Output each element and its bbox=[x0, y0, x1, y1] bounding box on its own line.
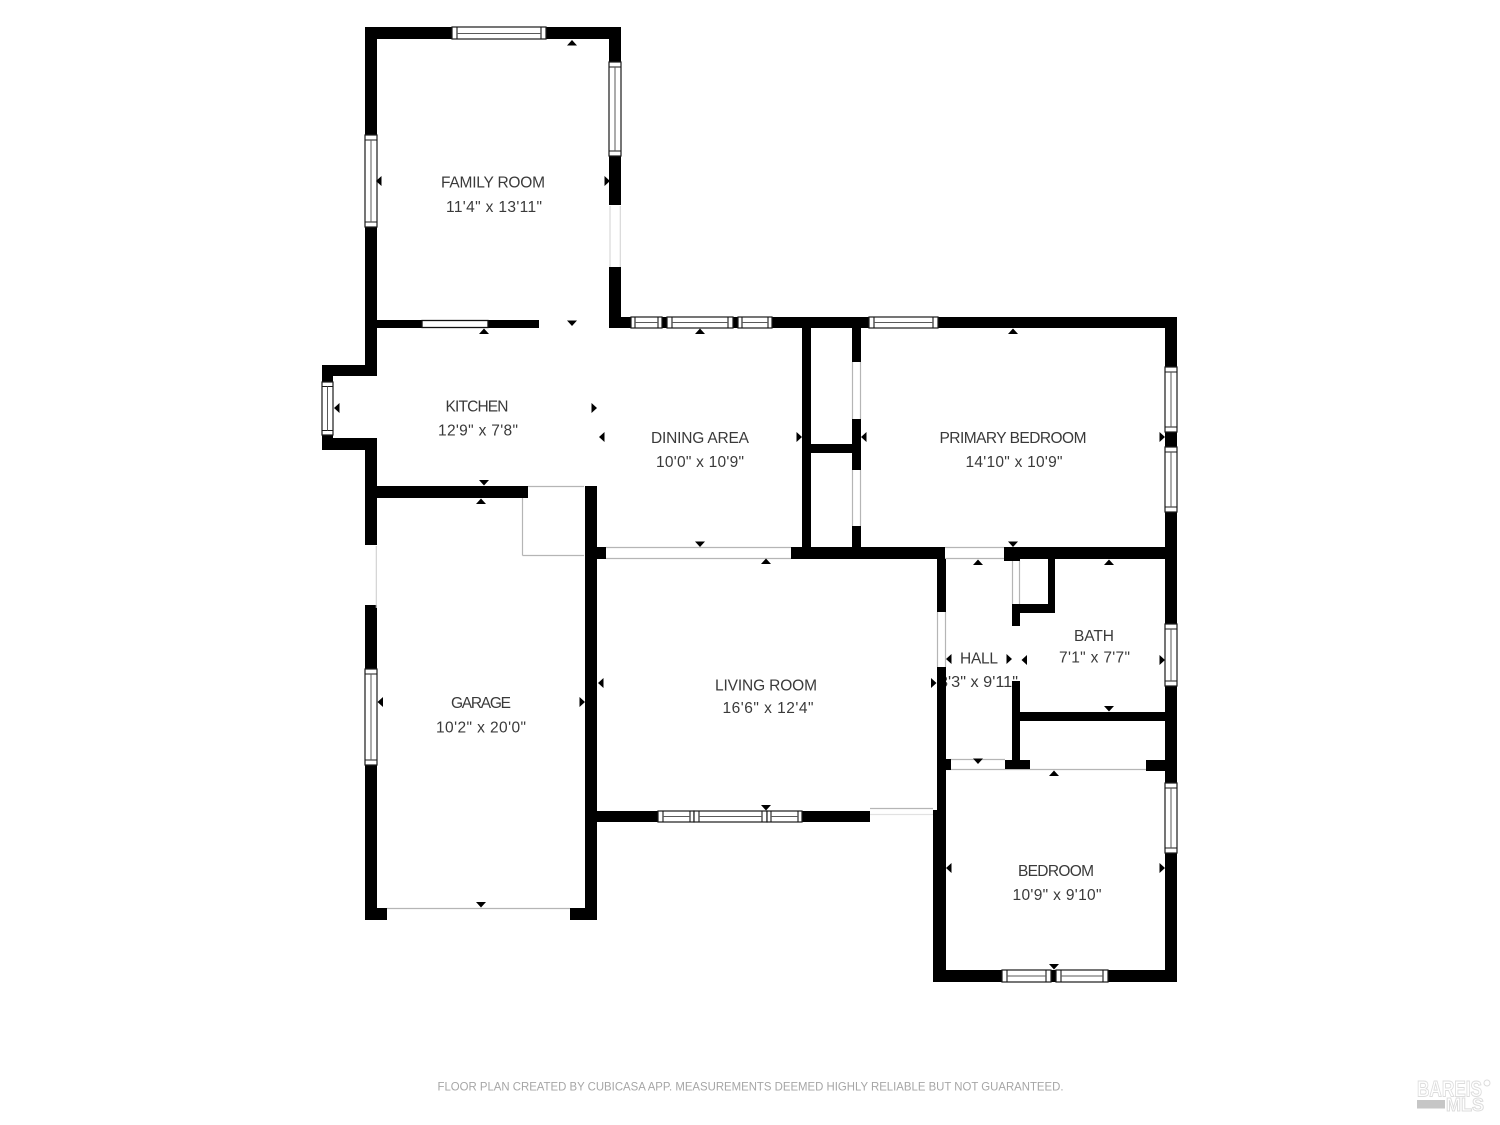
svg-text:GARAGE: GARAGE bbox=[451, 695, 511, 712]
svg-text:3'3" x 9'11": 3'3" x 9'11" bbox=[939, 674, 1018, 691]
svg-text:7'1" x 7'7": 7'1" x 7'7" bbox=[1059, 650, 1130, 667]
svg-text:FAMILY ROOM: FAMILY ROOM bbox=[441, 175, 545, 192]
svg-text:10'9" x 9'10": 10'9" x 9'10" bbox=[1013, 887, 1102, 904]
svg-text:PRIMARY BEDROOM: PRIMARY BEDROOM bbox=[940, 430, 1087, 447]
svg-text:KITCHEN: KITCHEN bbox=[446, 399, 509, 416]
svg-text:HALL: HALL bbox=[960, 651, 998, 668]
svg-text:DINING AREA: DINING AREA bbox=[651, 430, 750, 447]
svg-text:12'9" x 7'8": 12'9" x 7'8" bbox=[438, 423, 518, 440]
svg-text:11'4" x 13'11": 11'4" x 13'11" bbox=[446, 199, 542, 216]
svg-text:MLS: MLS bbox=[1446, 1094, 1484, 1115]
svg-text:FLOOR PLAN CREATED BY CUBICASA: FLOOR PLAN CREATED BY CUBICASA APP. MEAS… bbox=[438, 1080, 1064, 1094]
svg-text:10'2" x 20'0": 10'2" x 20'0" bbox=[436, 720, 526, 737]
svg-text:LIVING ROOM: LIVING ROOM bbox=[715, 678, 817, 695]
svg-text:BATH: BATH bbox=[1074, 628, 1114, 645]
svg-text:BEDROOM: BEDROOM bbox=[1018, 863, 1094, 880]
svg-text:14'10" x 10'9": 14'10" x 10'9" bbox=[966, 454, 1063, 471]
svg-text:10'0" x 10'9": 10'0" x 10'9" bbox=[656, 454, 744, 471]
svg-text:16'6" x 12'4": 16'6" x 12'4" bbox=[723, 700, 814, 717]
